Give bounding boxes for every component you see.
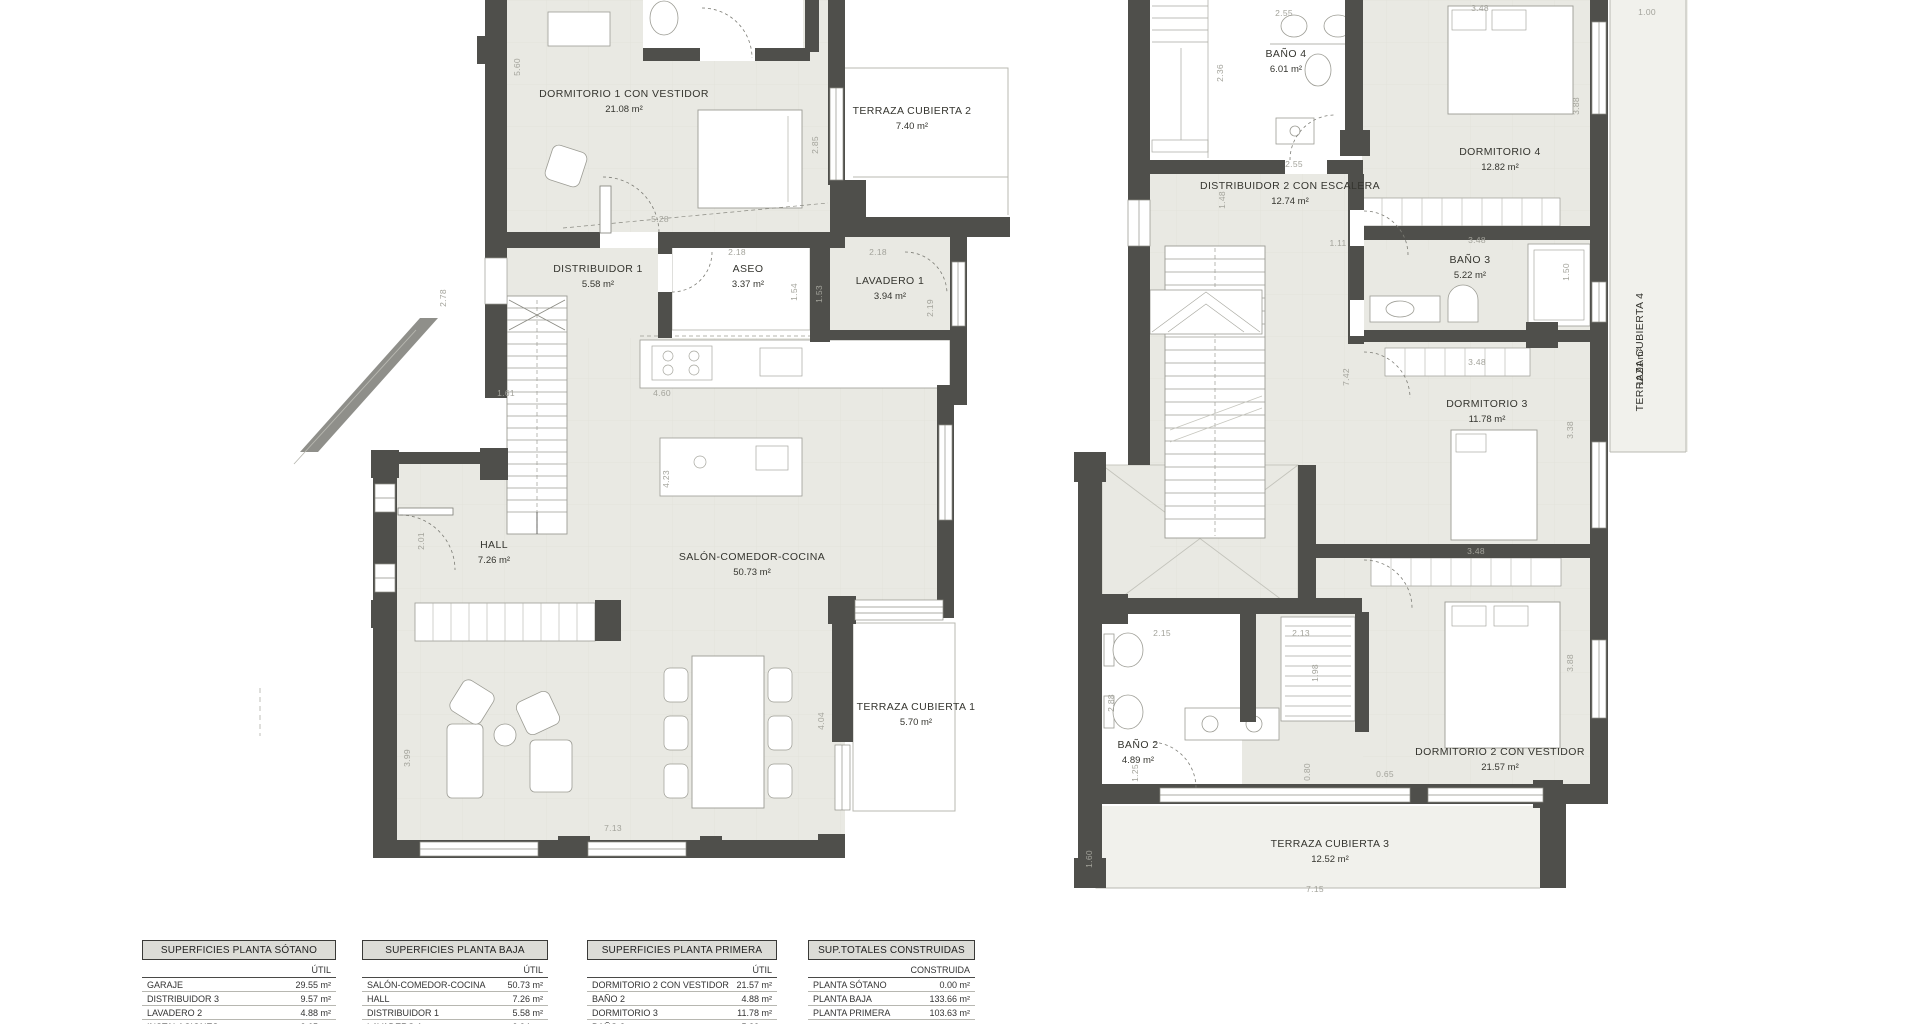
table-row: DORMITORIO 311.78 m² bbox=[587, 1006, 777, 1020]
dim-label: 7.15 bbox=[1306, 884, 1324, 894]
floorplan-planta-baja: DORMITORIO 1 CON VESTIDOR21.08 m²TERRAZA… bbox=[260, 0, 1010, 858]
staircase bbox=[507, 296, 567, 534]
row-label: HALL bbox=[367, 994, 390, 1004]
dim-label: 2.18 bbox=[869, 247, 887, 257]
room-area-label: 5.70 m² bbox=[900, 717, 932, 728]
dim-label: 7.42 bbox=[1341, 368, 1351, 386]
table-row: LAVADERO 24.88 m² bbox=[142, 1006, 336, 1020]
table-superficies-planta-baja: SUPERFICIES PLANTA BAJAÚTILSALÓN-COMEDOR… bbox=[362, 940, 548, 1024]
floorplan-planta-primera: BAÑO 46.01 m²DORMITORIO 412.82 m²DISTRIB… bbox=[1074, 0, 1688, 894]
row-label: PLANTA PRIMERA bbox=[813, 1008, 890, 1018]
row-value: 103.63 m² bbox=[929, 1008, 970, 1018]
row-value: 7.26 m² bbox=[512, 994, 543, 1004]
row-value: 4.88 m² bbox=[300, 1008, 331, 1018]
room-area-label: 7.26 m² bbox=[478, 555, 510, 566]
dim-label: 4.23 bbox=[661, 470, 671, 488]
terraza-4-band bbox=[1610, 0, 1688, 452]
dim-label: 3.48 bbox=[1467, 546, 1485, 556]
table-column-header: ÚTIL bbox=[142, 960, 336, 978]
row-label: BAÑO 2 bbox=[592, 994, 625, 1004]
row-value: 5.58 m² bbox=[512, 1008, 543, 1018]
room-area-label: 21.08 m² bbox=[605, 104, 643, 115]
room-label: HALL bbox=[480, 539, 508, 551]
dim-label: 3.38 bbox=[1565, 421, 1575, 439]
wardrobe-dorm3 bbox=[1385, 348, 1530, 376]
row-value: 4.88 m² bbox=[741, 994, 772, 1004]
room-area-label: 3.94 m² bbox=[874, 291, 906, 302]
room-area-label: 12.74 m² bbox=[1271, 196, 1309, 207]
room-area-label: 5.22 m² bbox=[1454, 270, 1486, 281]
row-label: PLANTA BAJA bbox=[813, 994, 872, 1004]
table-row: HALL7.26 m² bbox=[362, 992, 548, 1006]
kitchen-counter bbox=[640, 336, 950, 388]
dim-label: 1.25 bbox=[1130, 764, 1140, 782]
table-row: INSTALACIONES2.65 m² bbox=[142, 1020, 336, 1024]
toilet-top-bath bbox=[650, 1, 678, 35]
table-row: GARAJE29.55 m² bbox=[142, 978, 336, 992]
drawing-canvas: DORMITORIO 1 CON VESTIDOR21.08 m²TERRAZA… bbox=[0, 0, 1920, 1024]
dim-label: 1.98 bbox=[1310, 664, 1320, 682]
row-value: 133.66 m² bbox=[929, 994, 970, 1004]
wardrobe-dorm4 bbox=[1362, 198, 1560, 226]
row-value: 11.78 m² bbox=[737, 1008, 772, 1018]
room-label: DORMITORIO 1 CON VESTIDOR bbox=[539, 88, 709, 100]
table-row: PLANTA PRIMERA103.63 m² bbox=[808, 1006, 975, 1020]
dim-label: 4.04 bbox=[816, 712, 826, 730]
room-area-label: 50.73 m² bbox=[733, 567, 771, 578]
dim-label: 2.13 bbox=[1292, 628, 1310, 638]
room-label: TERRAZA CUBIERTA 1 bbox=[857, 701, 976, 713]
table-row: PLANTA BAJA133.66 m² bbox=[808, 992, 975, 1006]
dim-label: 1.61 bbox=[497, 388, 515, 398]
table-superficies-planta-primera: SUPERFICIES PLANTA PRIMERAÚTILDORMITORIO… bbox=[587, 940, 777, 1024]
room-label: DORMITORIO 2 CON VESTIDOR bbox=[1415, 746, 1585, 758]
row-value: 21.57 m² bbox=[736, 980, 772, 990]
kitchen-island bbox=[660, 438, 802, 496]
room-label: BAÑO 2 bbox=[1118, 738, 1159, 751]
table-row: BAÑO 24.88 m² bbox=[587, 992, 777, 1006]
room-area-label: 3.37 m² bbox=[732, 279, 764, 290]
table-sup-totales-construidas: SUP.TOTALES CONSTRUIDASCONSTRUIDAPLANTA … bbox=[808, 940, 975, 1020]
room-label: DORMITORIO 3 bbox=[1446, 398, 1528, 410]
table-row: DORMITORIO 2 CON VESTIDOR21.57 m² bbox=[587, 978, 777, 992]
room-label: TERRAZA CUBIERTA 3 bbox=[1271, 838, 1390, 850]
room-label: BAÑO 4 bbox=[1266, 47, 1307, 60]
row-value: 29.55 m² bbox=[295, 980, 331, 990]
table-column-header: ÚTIL bbox=[362, 960, 548, 978]
chevron-closet bbox=[1150, 290, 1262, 334]
row-label: DISTRIBUIDOR 3 bbox=[147, 994, 219, 1004]
row-label: GARAJE bbox=[147, 980, 183, 990]
wardrobe-dorm2 bbox=[1371, 558, 1561, 586]
room-area-label: 21.57 m² bbox=[1481, 762, 1519, 773]
room-area-label: 12.91 m² bbox=[1635, 348, 1646, 386]
dim-label: 7.13 bbox=[604, 823, 622, 833]
dim-label: 0.80 bbox=[1302, 763, 1312, 781]
row-value: 9.57 m² bbox=[300, 994, 331, 1004]
table-title: SUP.TOTALES CONSTRUIDAS bbox=[808, 940, 975, 960]
table-row: SALÓN-COMEDOR-COCINA50.73 m² bbox=[362, 978, 548, 992]
dim-label: 3.48 bbox=[1468, 357, 1486, 367]
table-title: SUPERFICIES PLANTA SÓTANO bbox=[142, 940, 336, 960]
table-row: DISTRIBUIDOR 15.58 m² bbox=[362, 1006, 548, 1020]
dim-label: 3.88 bbox=[1571, 97, 1581, 115]
room-label: DISTRIBUIDOR 2 CON ESCALERA bbox=[1200, 180, 1380, 192]
row-label: PLANTA SÓTANO bbox=[813, 980, 887, 990]
dim-label: 1.54 bbox=[789, 283, 799, 301]
dim-label: 1.50 bbox=[1561, 263, 1571, 281]
dim-label: 2.18 bbox=[728, 247, 746, 257]
room-area-label: 5.58 m² bbox=[582, 279, 614, 290]
dim-label: 2.88 bbox=[1106, 694, 1116, 712]
dim-label: 2.19 bbox=[925, 299, 935, 317]
row-value: 50.73 m² bbox=[507, 980, 543, 990]
dim-label: 1.60 bbox=[1084, 850, 1094, 868]
table-row: BAÑO 35.22 m² bbox=[587, 1020, 777, 1024]
table-row: PLANTA SÓTANO0.00 m² bbox=[808, 978, 975, 992]
room-label: DORMITORIO 4 bbox=[1459, 146, 1541, 158]
dim-label: 3.48 bbox=[1468, 235, 1486, 245]
room-area-label: 12.82 m² bbox=[1481, 162, 1519, 173]
dim-label: 3.88 bbox=[1565, 654, 1575, 672]
table-title: SUPERFICIES PLANTA PRIMERA bbox=[587, 940, 777, 960]
room-label: DISTRIBUIDOR 1 bbox=[553, 263, 643, 275]
dim-label: 2.01 bbox=[416, 532, 426, 550]
dim-label: 3.99 bbox=[402, 749, 412, 767]
dim-label: 2.55 bbox=[1285, 159, 1303, 169]
dim-label: 0.65 bbox=[1376, 769, 1394, 779]
hall-closet bbox=[415, 603, 595, 641]
table-row: DISTRIBUIDOR 39.57 m² bbox=[142, 992, 336, 1006]
room-label: LAVADERO 1 bbox=[856, 275, 924, 287]
room-label: SALÓN-COMEDOR-COCINA bbox=[679, 550, 825, 563]
dim-label: 2.78 bbox=[438, 289, 448, 307]
dim-label: 4.60 bbox=[653, 388, 671, 398]
dim-label: 2.15 bbox=[1153, 628, 1171, 638]
room-area-label: 6.01 m² bbox=[1270, 64, 1302, 75]
row-label: DORMITORIO 2 CON VESTIDOR bbox=[592, 980, 729, 990]
dim-label: 5.60 bbox=[512, 58, 522, 76]
table-column-header: CONSTRUIDA bbox=[808, 960, 975, 978]
floorplan-sheet: DORMITORIO 1 CON VESTIDOR21.08 m²TERRAZA… bbox=[0, 0, 1920, 1024]
dim-label: 2.85 bbox=[810, 136, 820, 154]
dresser bbox=[548, 12, 610, 46]
row-value: 0.00 m² bbox=[939, 980, 970, 990]
dim-label: 1.00 bbox=[1638, 7, 1656, 17]
dim-label: 2.36 bbox=[1215, 64, 1225, 82]
table-row: LAVADERO 13.94 m² bbox=[362, 1020, 548, 1024]
dim-label: 2.55 bbox=[1275, 8, 1293, 18]
dim-label: 1.48 bbox=[1217, 191, 1227, 209]
room-area-label: 7.40 m² bbox=[896, 121, 928, 132]
table-superficies-planta-sotano: SUPERFICIES PLANTA SÓTANOÚTILGARAJE29.55… bbox=[142, 940, 336, 1024]
row-label: SALÓN-COMEDOR-COCINA bbox=[367, 980, 486, 990]
row-label: LAVADERO 2 bbox=[147, 1008, 202, 1018]
room-label: ASEO bbox=[733, 263, 764, 275]
terraza-2-outline bbox=[845, 68, 1008, 215]
room-area-label: 12.52 m² bbox=[1311, 854, 1349, 865]
room-area-label: 11.78 m² bbox=[1469, 414, 1506, 425]
room-label: TERRAZA CUBIERTA 2 bbox=[853, 105, 972, 117]
dim-label: 5.28 bbox=[651, 214, 669, 224]
room-label: BAÑO 3 bbox=[1450, 253, 1491, 266]
dining-set bbox=[664, 656, 792, 808]
row-label: DISTRIBUIDOR 1 bbox=[367, 1008, 439, 1018]
dim-label: 1.53 bbox=[814, 285, 824, 303]
dim-label: 1.11 bbox=[1329, 238, 1346, 248]
table-title: SUPERFICIES PLANTA BAJA bbox=[362, 940, 548, 960]
row-label: DORMITORIO 3 bbox=[592, 1008, 658, 1018]
dim-label: 3.48 bbox=[1471, 3, 1489, 13]
table-column-header: ÚTIL bbox=[587, 960, 777, 978]
